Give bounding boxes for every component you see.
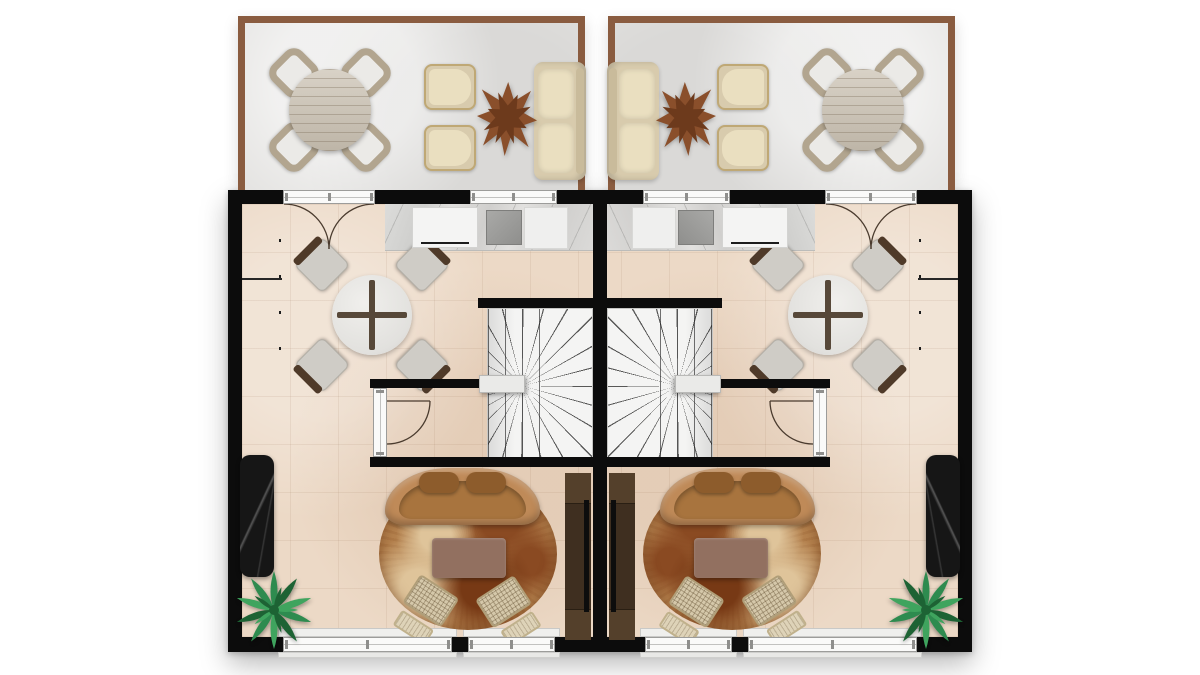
sofa-cushion (619, 123, 655, 173)
tall-cabinet (242, 205, 282, 360)
palm-plant (232, 568, 316, 652)
palm-fronds (888, 571, 964, 649)
interior-door-frame (813, 388, 827, 457)
stair-landing (675, 375, 721, 393)
coffee-table (432, 538, 506, 578)
hall-wall-top (370, 379, 483, 388)
dining-table-base (793, 312, 863, 318)
outdoor-armchair (424, 125, 476, 171)
french-door-swing (825, 204, 917, 251)
palm-fronds (236, 571, 312, 649)
living-window-small (468, 637, 555, 652)
sofa-cushion (538, 123, 574, 173)
exterior-window-ledge (640, 652, 737, 658)
sofa-cushion (538, 69, 574, 119)
french-door-threshold (825, 190, 917, 204)
sofa-cushion (741, 472, 781, 493)
sofa-cushion (419, 472, 459, 493)
outdoor-sofa (534, 62, 586, 180)
kitchen-sink (486, 210, 522, 245)
unit-right (600, 190, 972, 652)
cooktop-oven (412, 207, 478, 248)
outdoor-armchair (424, 64, 476, 110)
living-room-wall (370, 457, 600, 467)
sofa-cushion (619, 69, 655, 119)
interior-door-swing (387, 400, 432, 445)
outdoor-sofa (607, 62, 659, 180)
black-marble-console (926, 455, 960, 577)
wall-top-mid (730, 190, 825, 204)
living-window-small (645, 637, 732, 652)
interior-door-swing (768, 400, 813, 445)
party-wall (593, 190, 600, 652)
tv (611, 500, 616, 612)
stair-landing (479, 375, 525, 393)
stair-wall (478, 298, 593, 308)
counter-prep-area (632, 207, 676, 249)
sofa-seat (674, 481, 801, 519)
unit-left (228, 190, 600, 652)
sofa-cushion (694, 472, 734, 493)
floor-plan-canvas (0, 0, 1200, 675)
outdoor-armchair (717, 64, 769, 110)
party-wall (600, 190, 607, 652)
palm-plant (884, 568, 968, 652)
french-door-swing (283, 204, 375, 251)
terrace-left (238, 16, 585, 190)
sofa-seat (399, 481, 526, 519)
kitchen-window (643, 190, 730, 204)
coffee-table (694, 538, 768, 578)
kitchen-window (470, 190, 557, 204)
cooktop-oven (722, 207, 788, 248)
outdoor-dining-table (289, 69, 371, 151)
wall-top-mid (375, 190, 470, 204)
living-room-wall (600, 457, 830, 467)
outdoor-armchair (717, 125, 769, 171)
outdoor-dining-table (822, 69, 904, 151)
tall-cabinet (918, 205, 958, 360)
dining-table-base (337, 312, 407, 318)
hall-wall-top (717, 379, 830, 388)
exterior-window-ledge (743, 652, 922, 658)
stair-wall (607, 298, 722, 308)
exterior-window-ledge (463, 652, 560, 658)
terrace-right (608, 16, 955, 190)
french-door-threshold (283, 190, 375, 204)
interior-door-frame (373, 388, 387, 457)
wall-bottom-pier (452, 637, 468, 652)
sofa-cushion (466, 472, 506, 493)
black-marble-console (240, 455, 274, 577)
star-coffee-table (656, 82, 716, 156)
wall-bottom-pier (732, 637, 748, 652)
counter-prep-area (524, 207, 568, 249)
exterior-window-ledge (278, 652, 457, 658)
tv (584, 500, 589, 612)
kitchen-sink (678, 210, 714, 245)
star-coffee-table (477, 82, 537, 156)
